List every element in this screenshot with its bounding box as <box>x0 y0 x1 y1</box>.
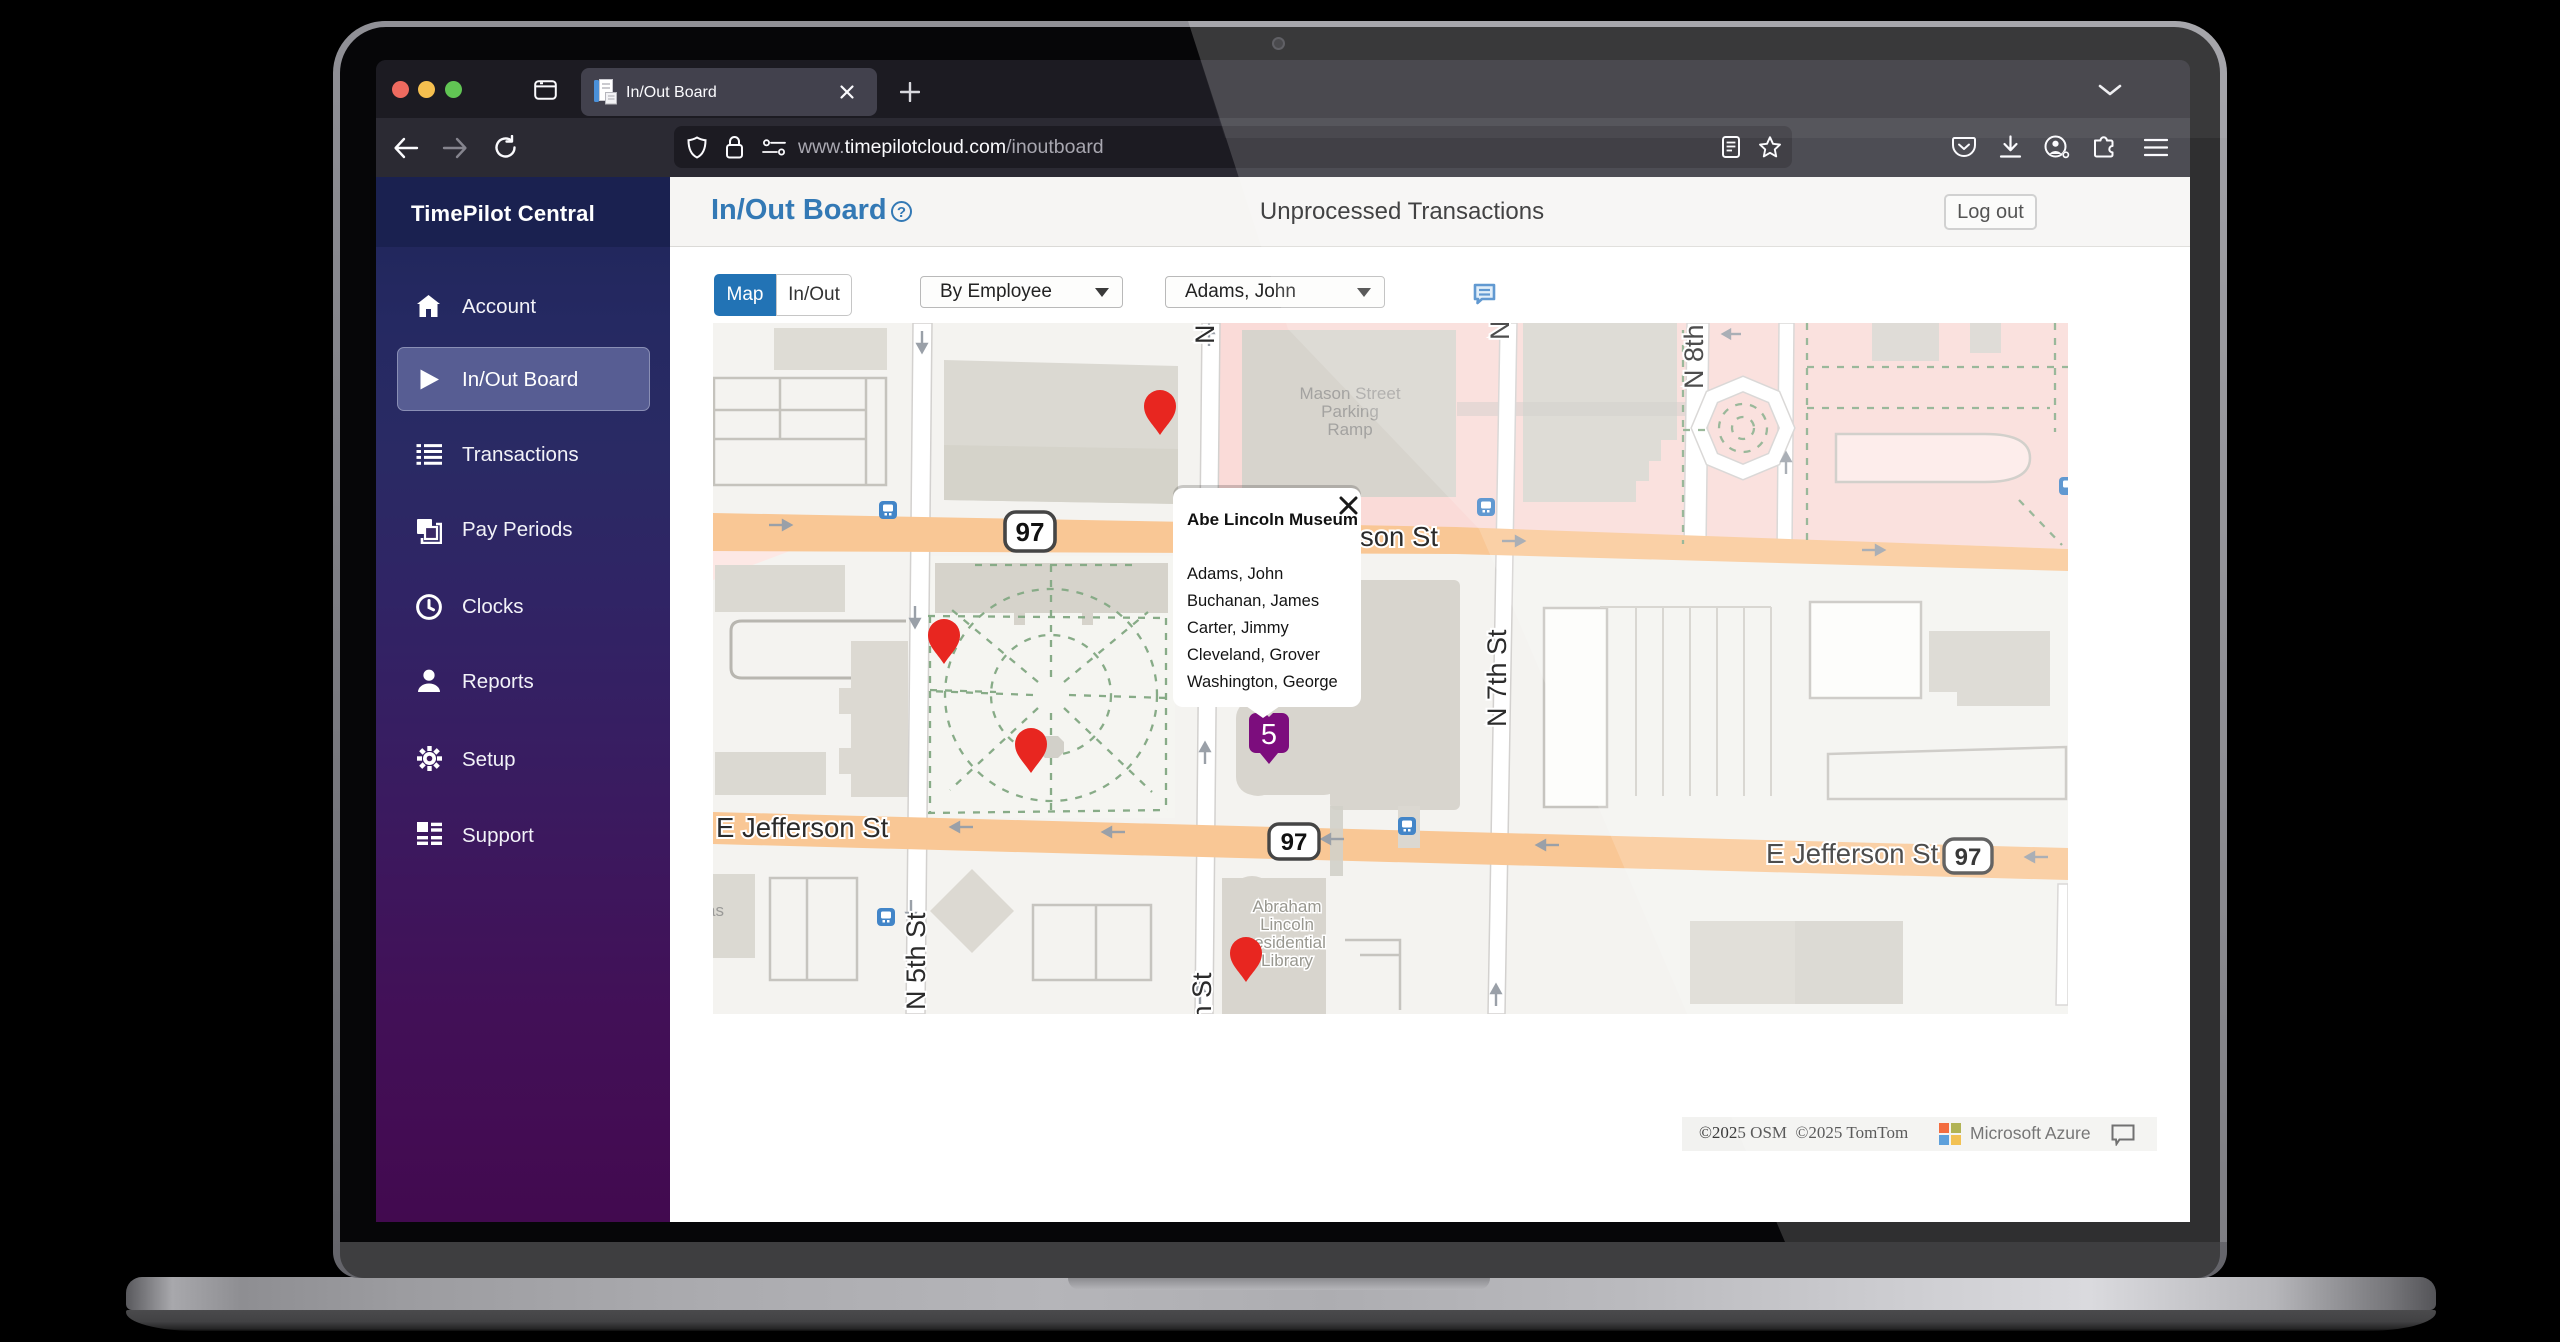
svg-text:Cleveland, Grover: Cleveland, Grover <box>1187 646 1320 664</box>
svg-text:Abraham: Abraham <box>1253 897 1322 916</box>
svg-text:Ramp: Ramp <box>1327 420 1372 439</box>
svg-text:E Jefferson St: E Jefferson St <box>1766 838 1939 869</box>
svg-text:N 7th St: N 7th St <box>1482 629 1512 727</box>
svg-text:5: 5 <box>1261 719 1277 751</box>
svg-text:N: N <box>1485 323 1515 340</box>
svg-text:E Jefferson St: E Jefferson St <box>716 812 889 843</box>
svg-text:Parking: Parking <box>1321 402 1379 421</box>
svg-text:N: N <box>1190 325 1220 345</box>
svg-text:N 8th St: N 8th St <box>1679 323 1709 389</box>
svg-text:Carter, Jimmy: Carter, Jimmy <box>1187 619 1290 637</box>
svg-text:esidential: esidential <box>1254 933 1326 952</box>
svg-text:son St: son St <box>1360 521 1438 552</box>
svg-text:97: 97 <box>1955 844 1982 871</box>
svg-text:97: 97 <box>1016 517 1045 547</box>
svg-text:as: as <box>713 901 724 920</box>
svg-text:Buchanan, James: Buchanan, James <box>1187 592 1319 610</box>
svg-text:Abe Lincoln Museum: Abe Lincoln Museum <box>1187 510 1358 529</box>
svg-text:Adams, John: Adams, John <box>1187 565 1283 583</box>
svg-text:Library: Library <box>1261 951 1313 970</box>
svg-text:N 5th St: N 5th St <box>901 912 931 1010</box>
svg-text:97: 97 <box>1281 829 1308 856</box>
svg-text:Lincoln: Lincoln <box>1260 915 1314 934</box>
svg-text:6th St: 6th St <box>1187 972 1217 1014</box>
svg-text:Washington, George: Washington, George <box>1187 673 1338 691</box>
svg-text:Mason Street: Mason Street <box>1299 384 1400 403</box>
